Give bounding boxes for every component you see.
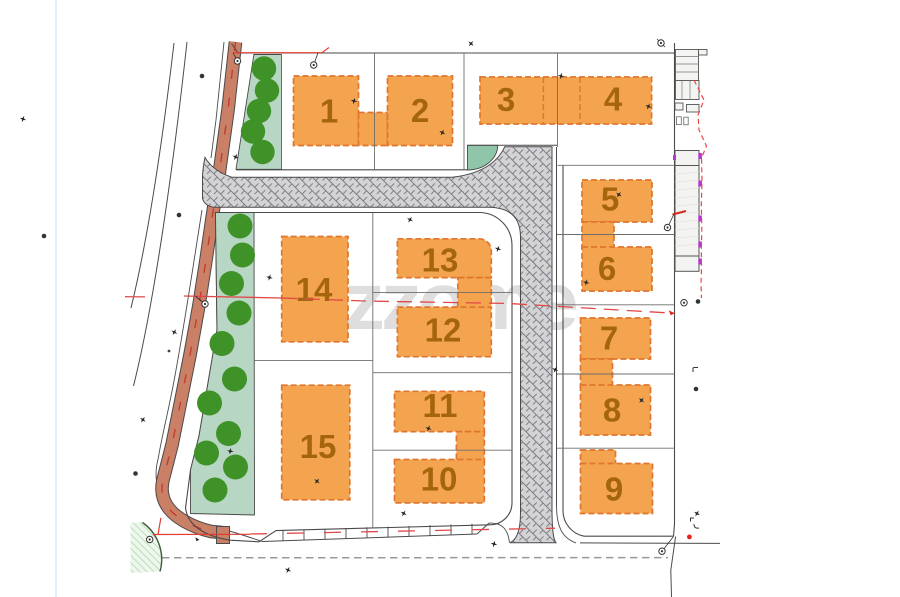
svg-text:6: 6	[598, 250, 616, 287]
svg-text:11: 11	[423, 387, 458, 424]
svg-text:8: 8	[603, 392, 621, 429]
svg-text:14: 14	[296, 271, 333, 308]
svg-text:3: 3	[497, 81, 515, 118]
svg-text:12: 12	[425, 312, 462, 349]
svg-text:2: 2	[411, 92, 429, 129]
svg-text:4: 4	[604, 81, 623, 118]
svg-text:5: 5	[601, 181, 619, 218]
svg-text:15: 15	[300, 428, 337, 465]
svg-text:1: 1	[320, 93, 338, 130]
svg-text:7: 7	[600, 320, 618, 357]
svg-text:13: 13	[422, 242, 459, 279]
svg-text:10: 10	[421, 461, 458, 498]
svg-text:9: 9	[605, 471, 623, 508]
